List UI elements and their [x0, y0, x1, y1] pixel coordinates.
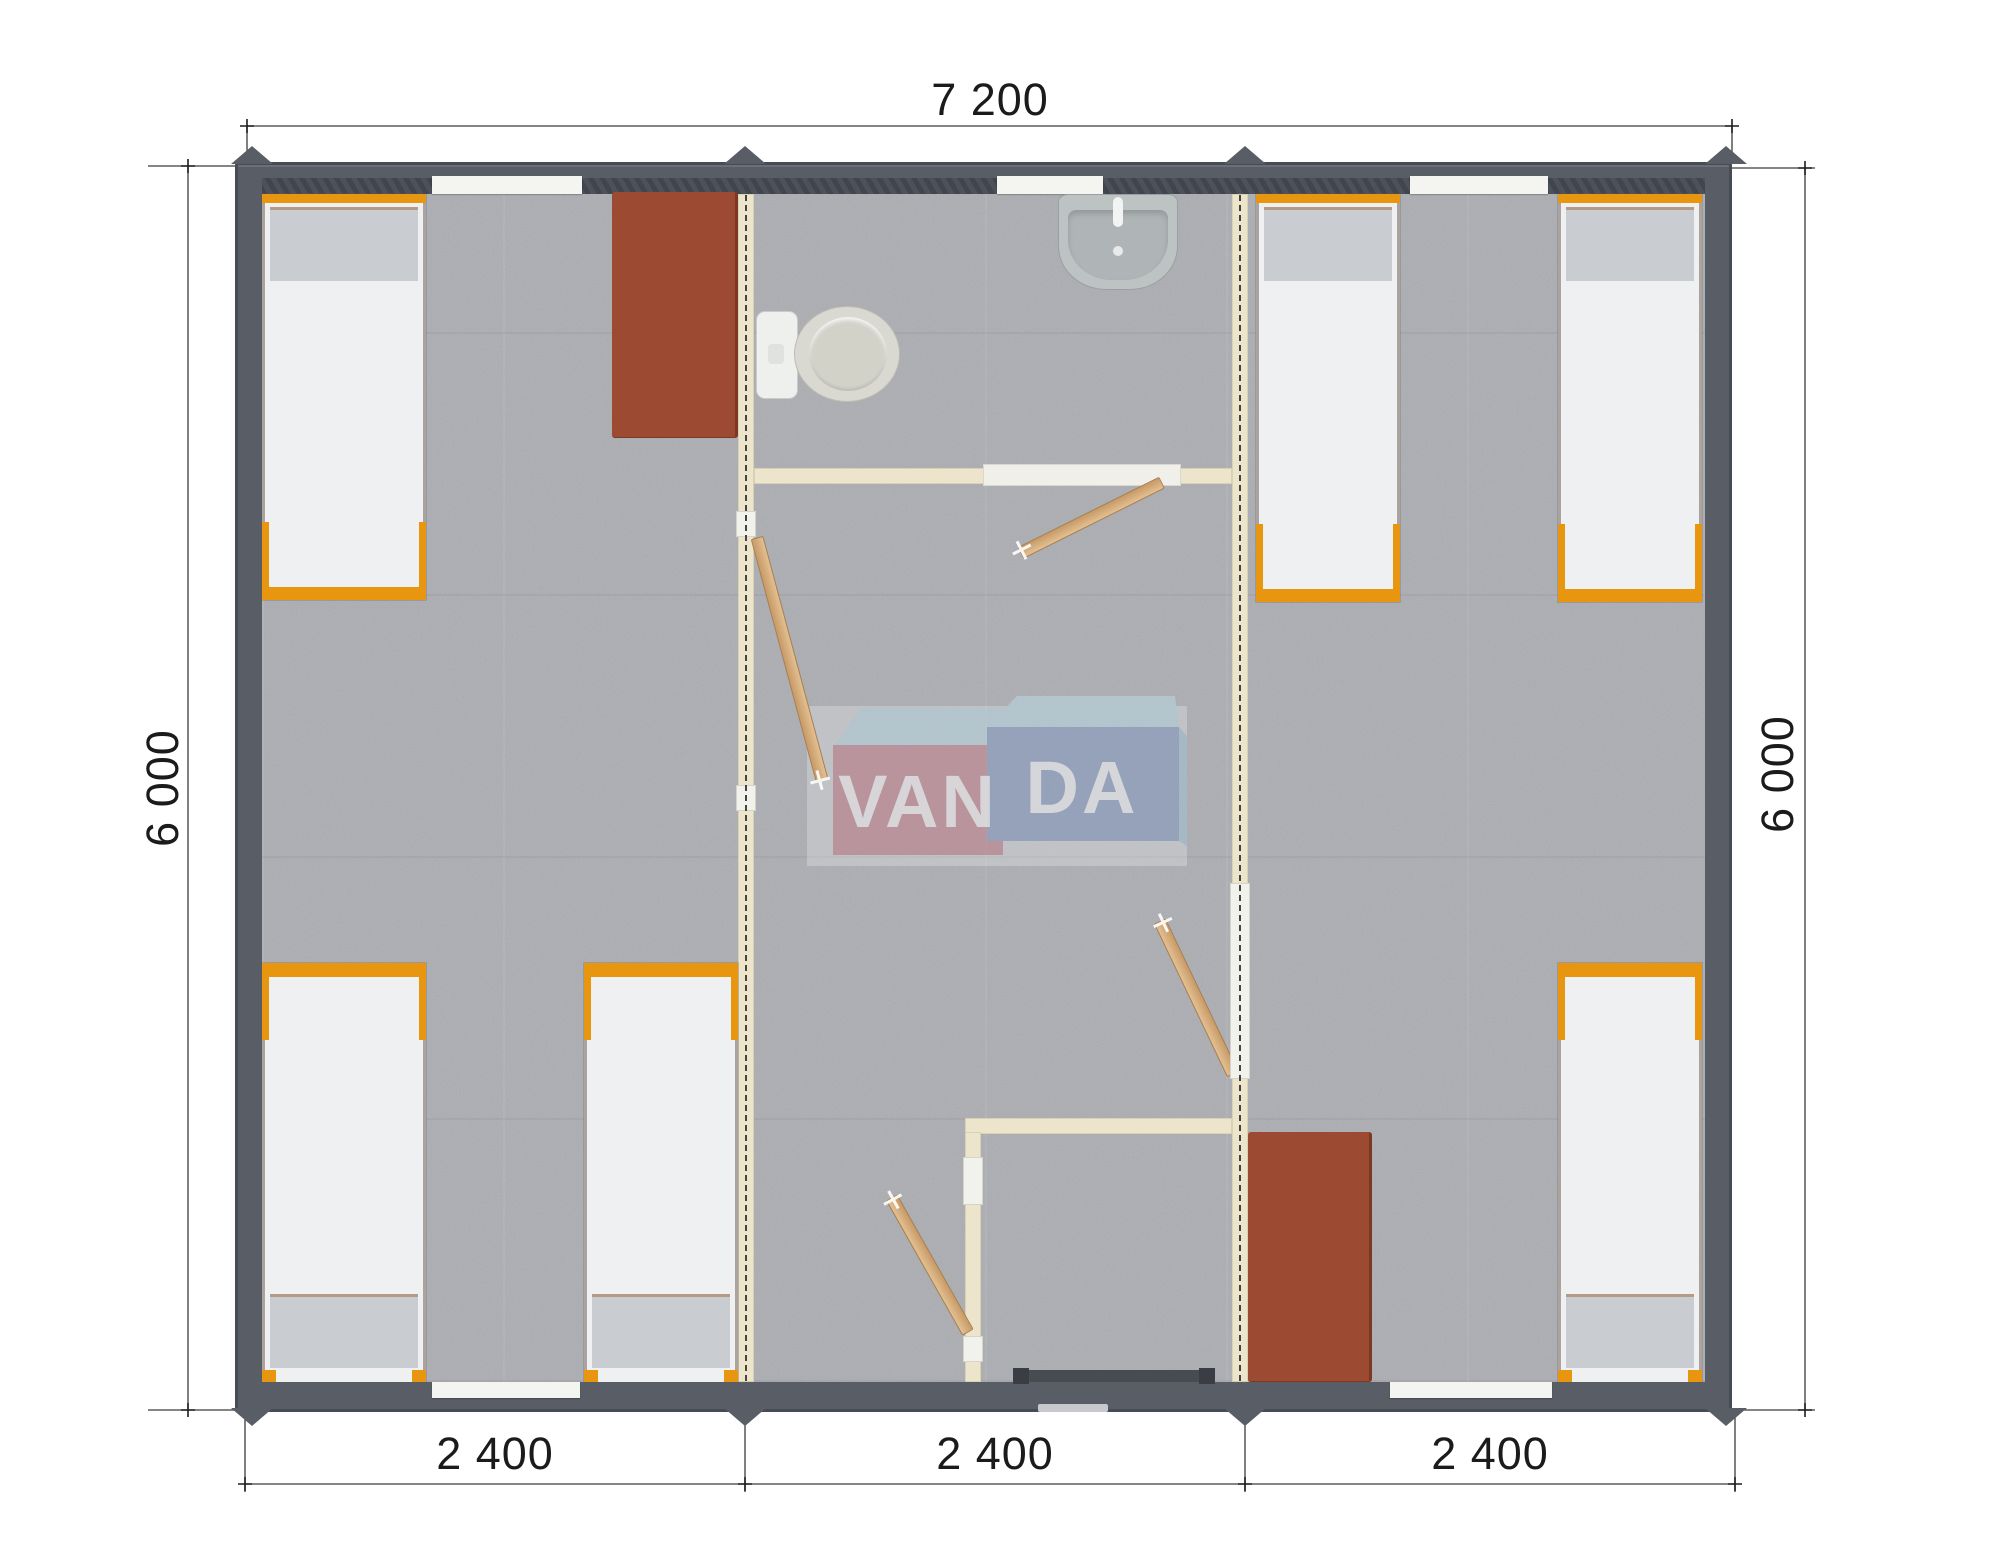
logo-text-van: VAN — [838, 760, 998, 843]
vestibule-north-wall — [965, 1118, 1232, 1134]
dim-label-right-height: 6 000 — [1752, 674, 1804, 874]
faucet-icon — [1113, 197, 1123, 227]
logo-left-box-top — [835, 708, 1007, 745]
window-top-left — [432, 176, 582, 194]
logo-right-box-top — [987, 696, 1179, 727]
joint-marker-icon — [231, 146, 273, 164]
toilet — [754, 306, 900, 402]
entry-door-sill — [1013, 1370, 1215, 1382]
window-top-right — [1410, 176, 1548, 194]
bed-left-room-bottom-left — [262, 963, 426, 1382]
bed-right-room-top-left — [1256, 194, 1400, 602]
joint-marker-icon — [231, 1408, 273, 1426]
bed-left-room-top — [262, 194, 426, 600]
vanda-logo: VAN DA — [805, 696, 1197, 872]
entry-step — [1038, 1404, 1108, 1412]
joint-marker-icon — [724, 146, 766, 164]
bed-right-room-bottom — [1558, 963, 1702, 1382]
joint-marker-icon — [724, 1408, 766, 1426]
joint-marker-icon — [1224, 1408, 1266, 1426]
window-bottom-right — [1390, 1382, 1552, 1398]
joint-marker-icon — [1224, 146, 1266, 164]
joint-marker-icon — [1705, 1408, 1747, 1426]
partition-module-right — [1232, 194, 1248, 1382]
window-bottom-left — [432, 1382, 580, 1398]
floor-plan-canvas: 7 200 6 000 6 000 2 400 2 400 2 400 VAN … — [0, 0, 2000, 1566]
dim-label-left-height: 6 000 — [137, 688, 189, 888]
dim-label-bottom-segment-2: 2 400 — [895, 1428, 1095, 1480]
logo-text-da: DA — [1026, 746, 1139, 829]
vestibule-door-jamb-bottom — [963, 1336, 983, 1362]
vestibule-door-jamb-top — [963, 1157, 983, 1205]
desk-right-room — [1248, 1132, 1372, 1382]
bed-right-room-top-right — [1558, 194, 1702, 602]
sink — [1058, 194, 1178, 290]
bed-left-room-bottom-right — [584, 963, 738, 1382]
module-joint-line-left — [745, 195, 747, 1381]
window-top-middle — [997, 176, 1103, 194]
dim-label-bottom-segment-1: 2 400 — [395, 1428, 595, 1480]
drain-icon — [1113, 246, 1123, 256]
dim-label-bottom-segment-3: 2 400 — [1390, 1428, 1590, 1480]
joint-marker-icon — [1705, 146, 1747, 164]
desk-left-room — [612, 192, 738, 438]
logo-right-box-side — [1179, 727, 1187, 846]
dim-label-top-width: 7 200 — [890, 74, 1090, 126]
module-joint-line-right — [1239, 195, 1241, 1381]
partition-module-left — [738, 194, 754, 1382]
